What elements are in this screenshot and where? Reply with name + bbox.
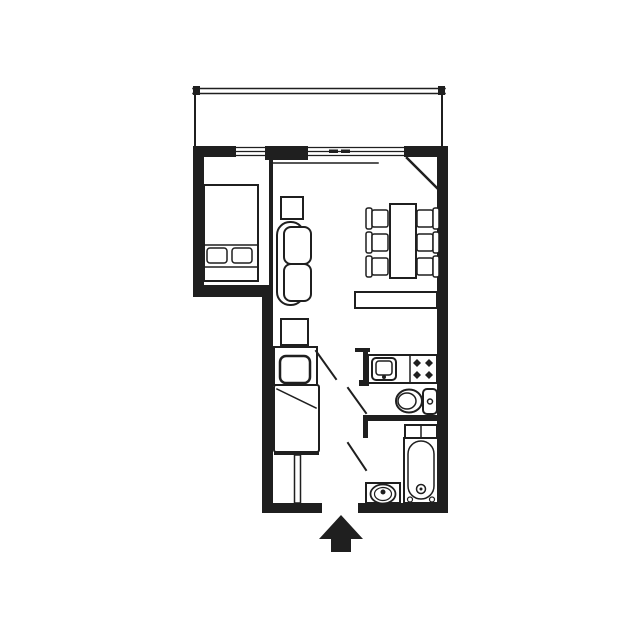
dining-table	[390, 204, 416, 278]
kitchen-sink-west	[280, 356, 310, 383]
floor-plan-page	[0, 0, 640, 640]
bath-door-leaf	[348, 443, 366, 470]
entrance-arrow	[319, 515, 363, 552]
wc-door-leaf	[348, 388, 366, 413]
wall-left-upper	[193, 146, 204, 297]
chair-right-2-back	[433, 232, 439, 253]
kitchen-sink-east-drain	[382, 375, 386, 379]
wall-wc-south	[363, 415, 448, 421]
bathtub-tap-left	[408, 497, 413, 502]
chair-right-3-seat	[417, 258, 433, 275]
wall-kitchen-stub-top	[355, 348, 370, 352]
wall-bath-west-stub	[363, 421, 368, 438]
wall-bottom-left	[262, 503, 322, 513]
chair-right-3-back	[433, 256, 439, 277]
bathtub-tap-right	[430, 497, 435, 502]
chair-left-1-seat	[372, 210, 388, 227]
window-living-tick-2	[341, 150, 350, 154]
closet-partition	[295, 455, 301, 503]
chair-right-1-seat	[417, 210, 433, 227]
chair-left-1-back	[366, 208, 372, 229]
sofa-side-cabinet	[281, 319, 308, 345]
toilet-flush-button	[428, 399, 433, 404]
chair-left-2-back	[366, 232, 372, 253]
side-table	[281, 197, 303, 219]
chair-left-3-seat	[372, 258, 388, 275]
kitchen-sink-east-inner	[376, 361, 392, 375]
toilet-bowl-inner	[398, 393, 416, 409]
chair-right-1-back	[433, 208, 439, 229]
chair-left-2-seat	[372, 234, 388, 251]
sofa-cushion-bottom	[284, 264, 311, 301]
floor-plan-canvas	[0, 0, 640, 640]
sofa-cushion-top	[284, 227, 311, 264]
wall-bottom-right	[358, 503, 448, 513]
wall-bedroom-south	[193, 285, 273, 297]
chair-right-2-seat	[417, 234, 433, 251]
wall-left-lower	[262, 285, 273, 513]
corridor-door-leaf	[316, 351, 336, 379]
partition-bedroom	[269, 160, 273, 285]
kitchen-lower-unit	[274, 385, 319, 452]
washbasin-faucet	[381, 490, 386, 495]
chair-left-3-back	[366, 256, 372, 277]
bed-pillow-right	[232, 248, 252, 263]
bathtub-drain-dot	[420, 488, 423, 491]
balcony-door-leaf	[407, 158, 441, 192]
sideboard	[355, 292, 437, 308]
window-living-tick-1	[329, 150, 338, 154]
bed-pillow-left	[207, 248, 227, 263]
